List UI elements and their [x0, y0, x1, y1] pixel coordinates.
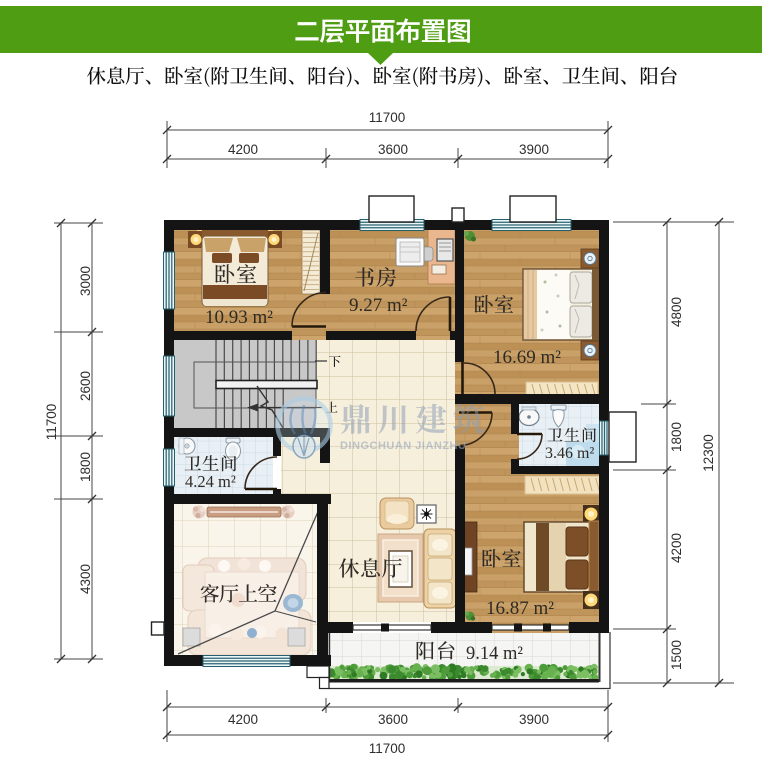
svg-text:11700: 11700	[369, 741, 406, 756]
svg-text:3900: 3900	[519, 142, 549, 157]
svg-text:3.46 m²: 3.46 m²	[545, 445, 594, 462]
svg-text:4200: 4200	[228, 142, 258, 157]
svg-text:11700: 11700	[44, 404, 59, 441]
svg-text:4300: 4300	[78, 564, 93, 594]
svg-text:1800: 1800	[78, 452, 93, 482]
svg-text:1800: 1800	[669, 422, 684, 452]
svg-text:10.93 m²: 10.93 m²	[205, 307, 273, 328]
svg-text:3600: 3600	[378, 142, 408, 157]
svg-text:16.87 m²: 16.87 m²	[486, 598, 554, 619]
svg-text:3600: 3600	[378, 712, 408, 727]
svg-text:DINGCHUAN JIANZHU: DINGCHUAN JIANZHU	[340, 440, 466, 452]
svg-text:12300: 12300	[701, 434, 716, 472]
svg-text:3000: 3000	[78, 266, 93, 296]
svg-text:2600: 2600	[78, 371, 93, 401]
svg-text:4200: 4200	[669, 533, 684, 563]
svg-text:9.27 m²: 9.27 m²	[349, 295, 408, 316]
svg-text:4200: 4200	[228, 712, 258, 727]
svg-text:4.24 m²: 4.24 m²	[185, 472, 236, 491]
svg-text:4800: 4800	[669, 297, 684, 327]
svg-text:3900: 3900	[519, 712, 549, 727]
svg-text:16.69 m²: 16.69 m²	[493, 347, 561, 368]
svg-text:9.14 m²: 9.14 m²	[466, 644, 523, 664]
svg-text:11700: 11700	[369, 110, 406, 125]
svg-text:1500: 1500	[669, 640, 684, 670]
